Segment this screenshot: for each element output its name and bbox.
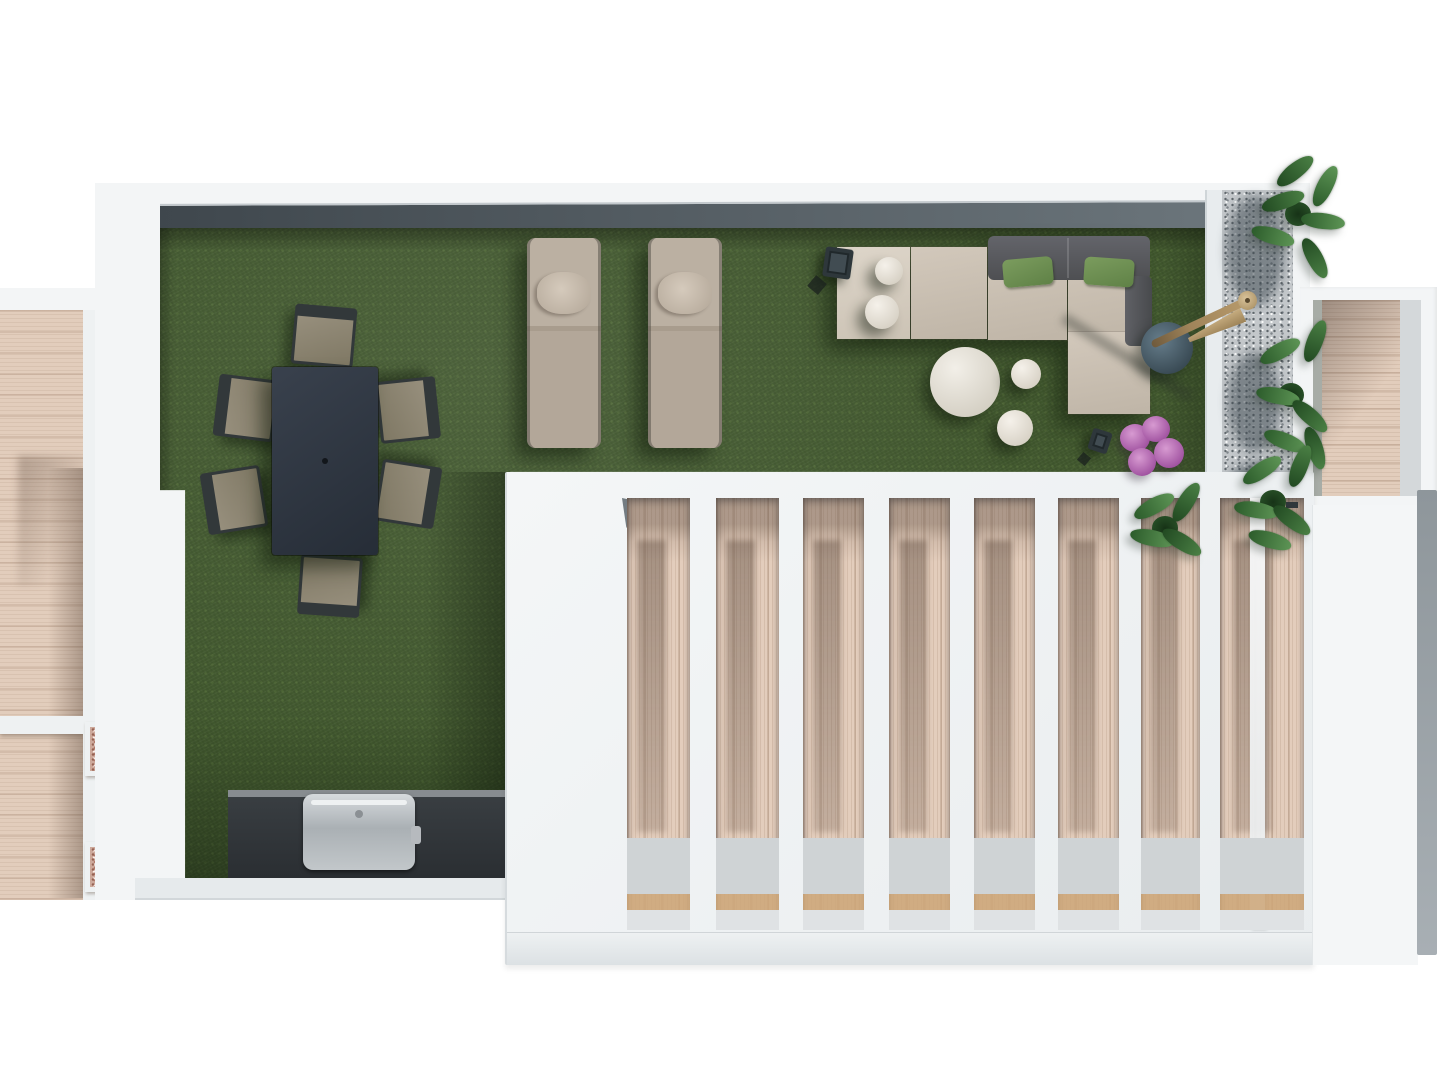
- pergola-opening: [974, 498, 1035, 930]
- right-terrace-inner-wall: [1400, 300, 1421, 496]
- green-shrub: [1243, 158, 1353, 278]
- green-shrub: [1248, 328, 1348, 468]
- purple-blob: [1128, 448, 1156, 476]
- pergola-opening: [1058, 498, 1119, 930]
- leaf: [1247, 527, 1294, 554]
- round-pouf: [997, 410, 1033, 446]
- pergola-opening: [889, 498, 950, 930]
- green-shrub-overhang: [1126, 490, 1204, 562]
- round-pouf: [1011, 359, 1041, 389]
- round-pouf: [875, 257, 903, 285]
- right-wall-edge: [1417, 490, 1437, 955]
- left-terrace-step: [0, 716, 84, 734]
- lounger-pillow: [537, 272, 591, 314]
- left-neighbor-terrace: [0, 288, 95, 902]
- right-wall-panel: [1312, 505, 1418, 965]
- bbq-counter: [228, 790, 510, 878]
- dining-chair: [374, 459, 443, 530]
- parasol-finial: [1238, 291, 1257, 310]
- left-terrace-wall-shadow: [48, 468, 88, 898]
- left-terrace-right-wall: [83, 310, 95, 900]
- pergola-opening: [716, 498, 779, 930]
- round-coffee-table: [930, 347, 1000, 417]
- pergola-opening: [803, 498, 864, 930]
- bbq-grill: [303, 794, 415, 870]
- sun-lounger: [648, 238, 722, 448]
- purple-shrub: [1114, 414, 1188, 480]
- pergola-opening: [1141, 498, 1200, 930]
- green-pillow: [1083, 256, 1135, 287]
- dining-chair: [212, 374, 279, 443]
- leaf: [1257, 333, 1303, 369]
- leaf: [1308, 163, 1341, 210]
- patio-column: [1250, 498, 1264, 930]
- sofa-chaise-module: [911, 247, 987, 339]
- round-pouf: [865, 295, 899, 329]
- leaf: [1297, 235, 1333, 281]
- dining-set: [195, 300, 445, 622]
- leaf: [1239, 451, 1284, 489]
- dining-chair: [200, 465, 269, 536]
- leaf: [1250, 223, 1297, 250]
- leaf: [1273, 151, 1317, 192]
- green-pillow: [1002, 256, 1054, 288]
- leaf: [1300, 211, 1345, 231]
- dining-chair: [297, 554, 363, 618]
- pergola-opening: [1220, 498, 1304, 930]
- dining-chair: [375, 376, 441, 444]
- lounger-pillow: [658, 272, 712, 314]
- grill-thermometer: [355, 810, 363, 818]
- top-wall-inner-face: [160, 200, 1220, 233]
- green-shrub: [1228, 452, 1333, 557]
- pergola-opening: [627, 498, 690, 930]
- bottom-wall: [135, 878, 515, 900]
- dining-table: [272, 367, 378, 555]
- candle-lantern: [822, 246, 854, 280]
- purple-blob: [1154, 438, 1184, 468]
- dining-chair: [291, 303, 358, 368]
- floor-plan-render: [0, 0, 1440, 1080]
- sun-lounger: [527, 238, 601, 448]
